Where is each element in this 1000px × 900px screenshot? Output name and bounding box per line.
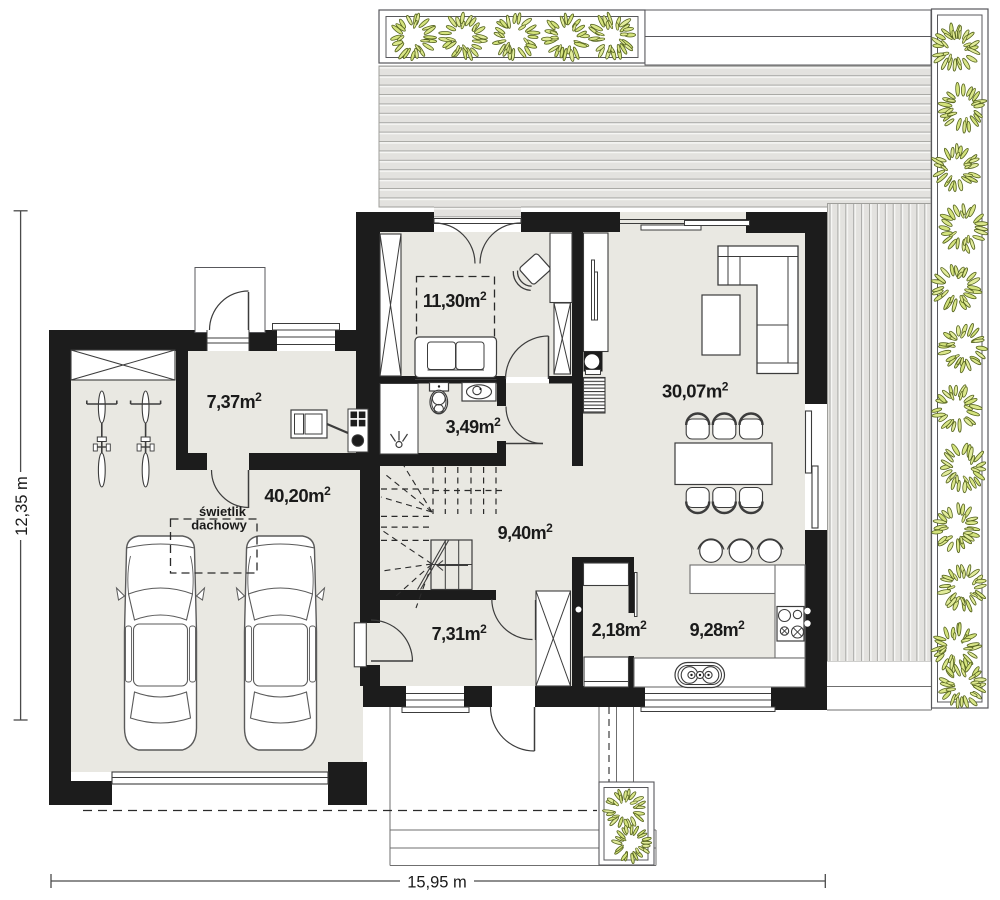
svg-text:11,30m2: 11,30m2 xyxy=(423,289,487,311)
svg-text:dachowy: dachowy xyxy=(191,518,247,533)
svg-text:7,31m2: 7,31m2 xyxy=(432,622,488,644)
svg-text:12,35 m: 12,35 m xyxy=(13,476,31,536)
svg-text:40,20m2: 40,20m2 xyxy=(264,484,331,506)
svg-text:30,07m2: 30,07m2 xyxy=(662,380,729,402)
svg-text:3,49m2: 3,49m2 xyxy=(446,415,502,437)
svg-text:7,37m2: 7,37m2 xyxy=(207,390,263,412)
svg-text:15,95 m: 15,95 m xyxy=(407,874,467,892)
svg-text:9,28m2: 9,28m2 xyxy=(690,618,746,640)
svg-text:9,40m2: 9,40m2 xyxy=(498,521,554,543)
svg-text:2,18m2: 2,18m2 xyxy=(592,618,648,640)
